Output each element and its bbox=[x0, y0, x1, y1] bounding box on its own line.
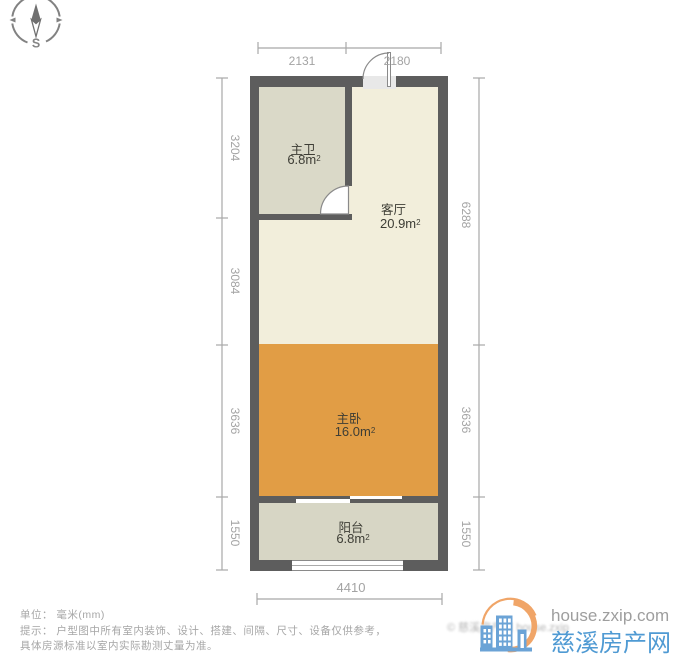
svg-text:S: S bbox=[32, 37, 40, 51]
